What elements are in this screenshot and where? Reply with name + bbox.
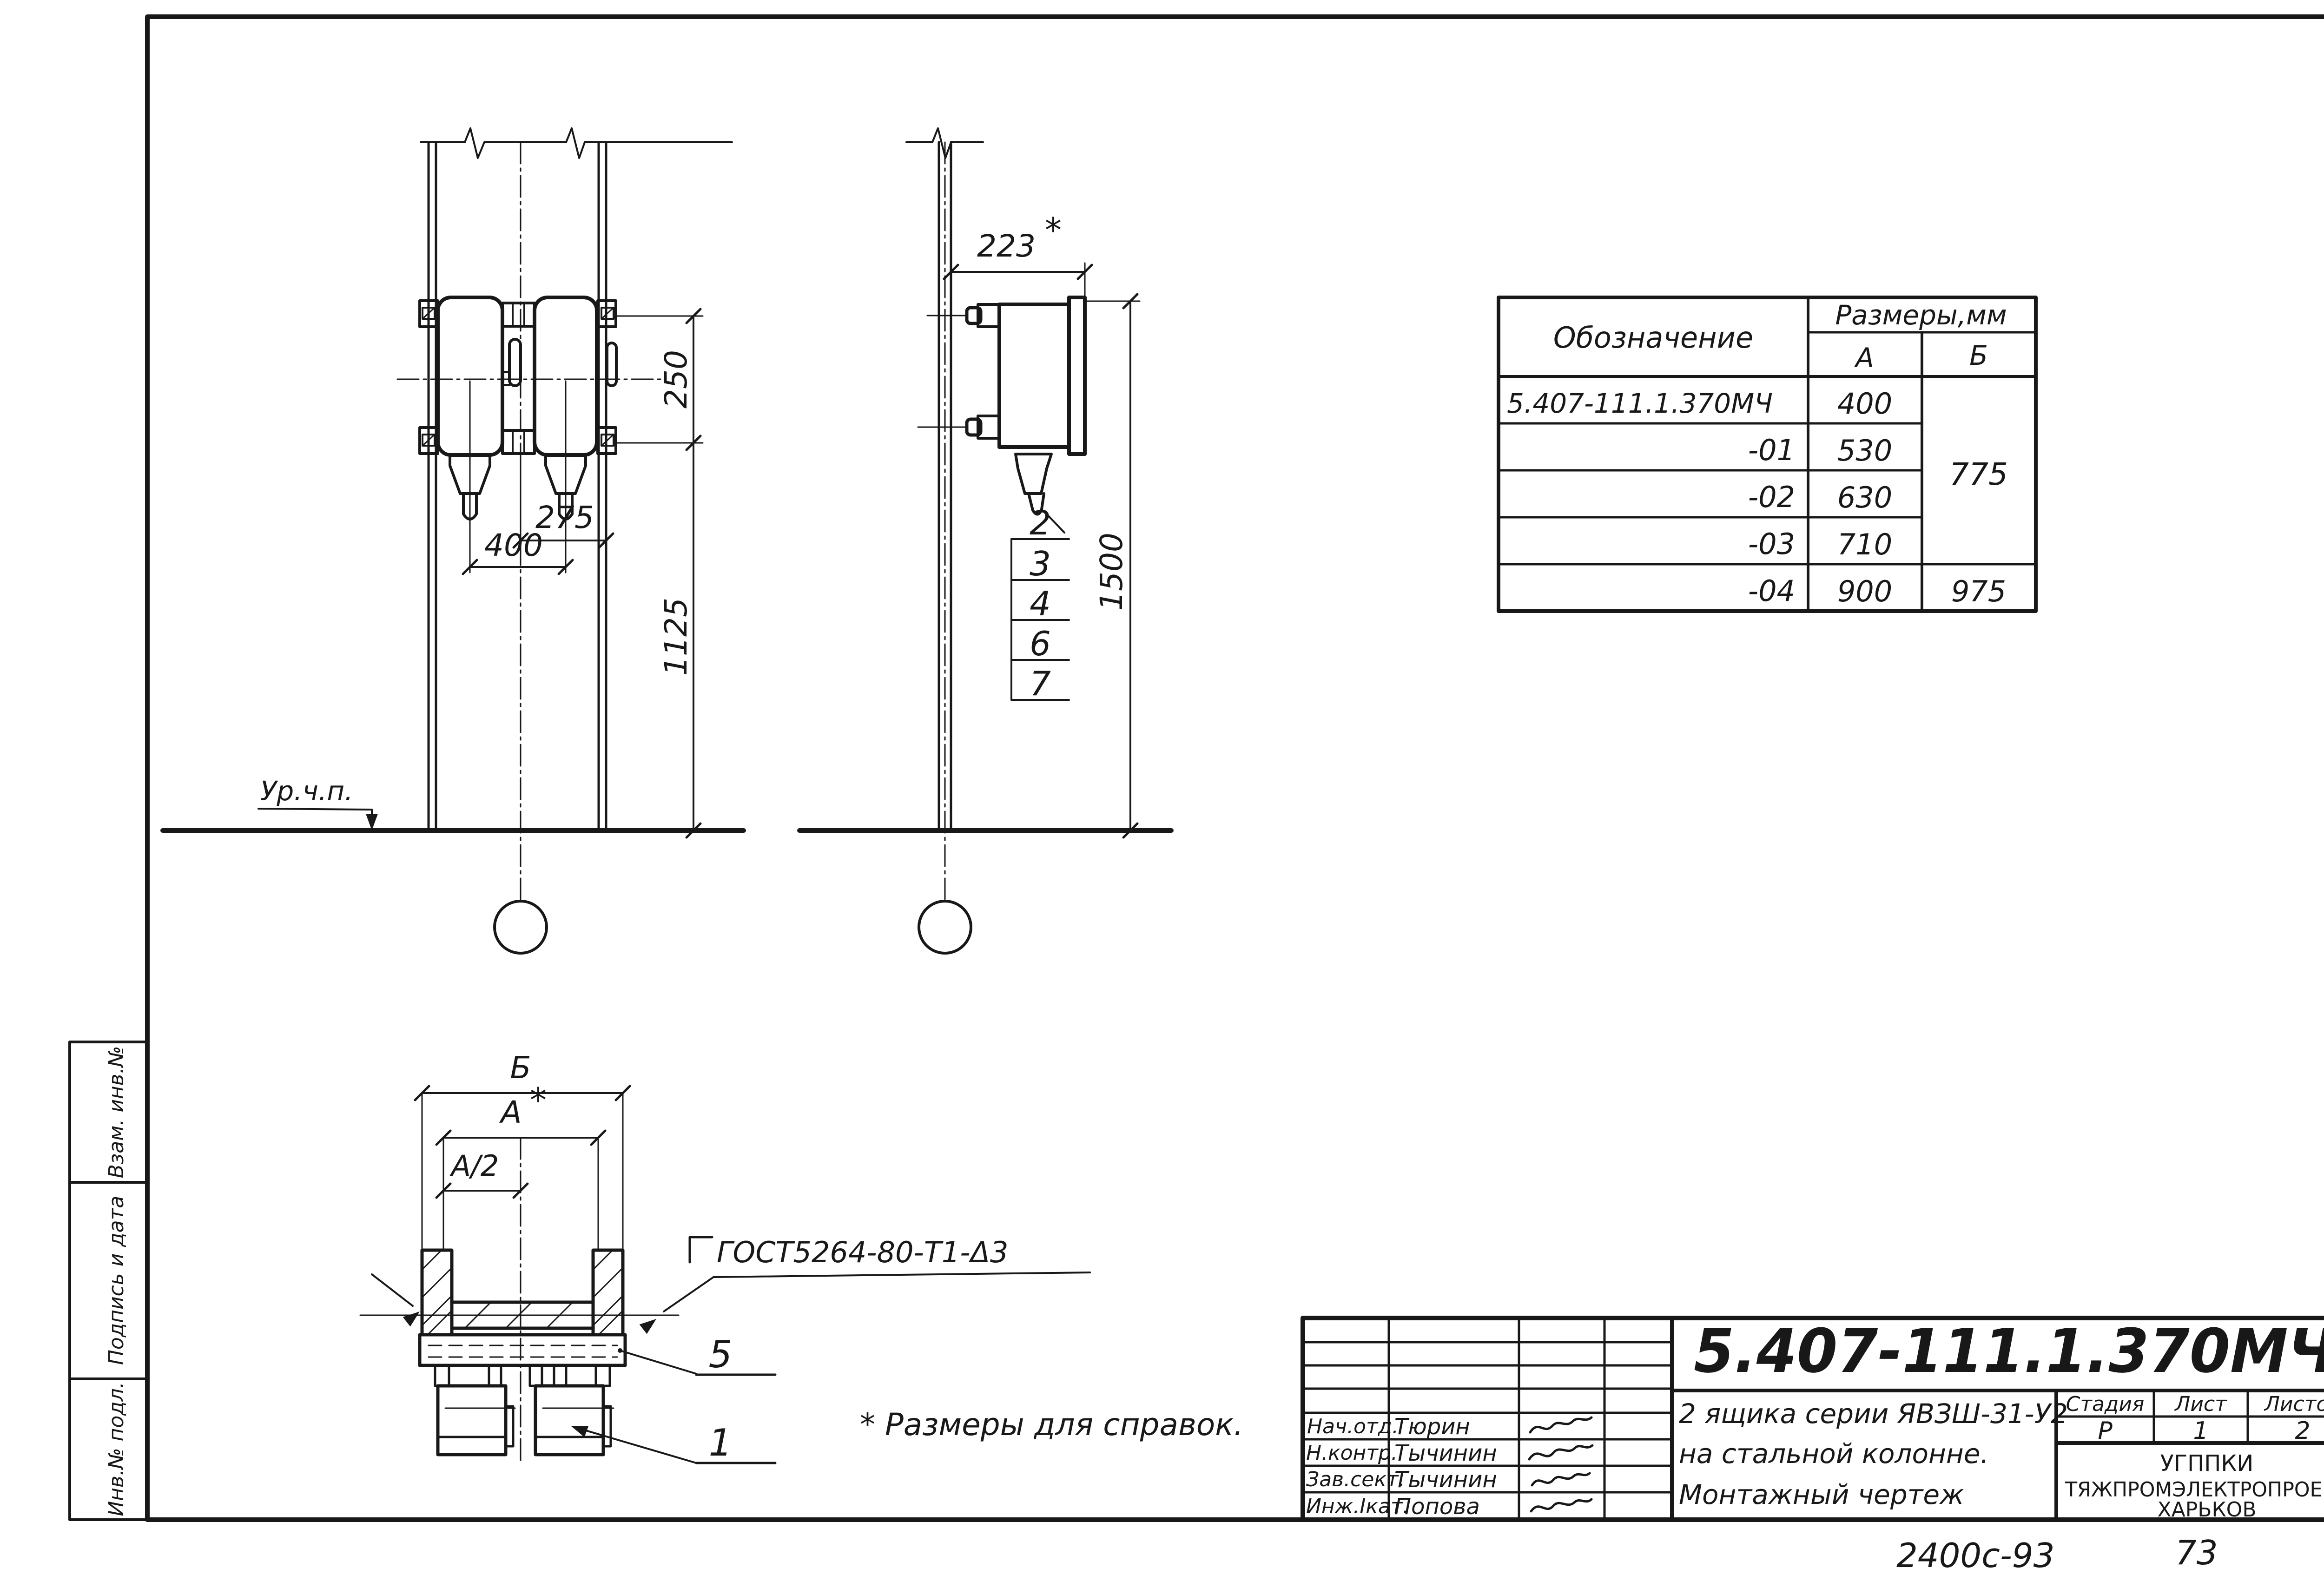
table-header-sizes: Размеры,мм [1835, 299, 2007, 331]
row3-a: 630 [1837, 481, 1892, 514]
dim-a-star: * [530, 1081, 547, 1120]
axis-bubble-front [495, 901, 547, 953]
name-3: Тычинин [1394, 1467, 1497, 1493]
dim-a-half-text: А/2 [449, 1149, 499, 1183]
name-1: Тюрин [1394, 1414, 1470, 1440]
ground-label-text: Ур.ч.п. [260, 775, 353, 807]
dim-1125: 1125 [658, 443, 700, 837]
section-view: Б А * А/2 [360, 1050, 1090, 1464]
callout-5: 5 [709, 1333, 733, 1376]
signature-rows: Нач.отд. Тюрин Н.контр. Тычинин Зав.сект… [1303, 1414, 1672, 1520]
dim-400-text: 400 [484, 527, 543, 563]
row4-a: 710 [1837, 527, 1892, 561]
row2-designation: -01 [1748, 433, 1795, 467]
table-header-designation: Обозначение [1553, 321, 1753, 355]
dim-1500: 1500 [1085, 294, 1140, 837]
callout-4: 4 [1030, 584, 1051, 623]
dim-1500-text: 1500 [1094, 533, 1129, 611]
row1-a: 400 [1837, 387, 1892, 421]
table-row: -03 710 [1748, 527, 1892, 561]
dim-223: 223 * [944, 211, 1092, 297]
box-side-body [999, 304, 1069, 447]
sheet-value: 1 [2193, 1417, 2208, 1445]
callout-stack: 2 3 4 6 7 [1011, 503, 1069, 703]
title-block: Нач.отд. Тюрин Н.контр. Тычинин Зав.сект… [1303, 1316, 2324, 1522]
side-clamps [918, 304, 999, 438]
dim-1125-text: 1125 [658, 598, 694, 676]
plate-tabs [435, 1365, 610, 1386]
table-row: 5.407-111.1.370МЧ 400 [1507, 387, 1892, 421]
org-line-3: ХАРЬКОВ [2157, 1498, 2256, 1522]
channel-profile [422, 1250, 623, 1335]
row2-a: 530 [1837, 434, 1892, 468]
row4-designation: -03 [1748, 527, 1795, 561]
catalog-code: 2400с-93 [1896, 1536, 2054, 1575]
mounting-plate [420, 1335, 625, 1365]
callout-3: 3 [1030, 544, 1051, 583]
margin-stamp: Взам. инв.№ Подпись и дата Инв.№ подл. [70, 1042, 147, 1520]
weld-note-text: ГОСТ5264-80-Т1-Δ3 [717, 1235, 1008, 1269]
break-line-top [421, 128, 732, 158]
stage-label: Стадия [2066, 1392, 2145, 1416]
dim-a-text: А [499, 1094, 522, 1130]
stage-grid: Стадия Лист Листов Р 1 2 [2056, 1390, 2324, 1445]
dim-250-text: 250 [658, 350, 694, 409]
front-view: 250 1125 275 400 Ур.ч.п. [163, 128, 744, 953]
dim-223-star: * [1045, 211, 1062, 250]
callout-7: 7 [1030, 664, 1051, 703]
weld-flag-icon [690, 1237, 712, 1262]
weld-arrow-left [372, 1274, 413, 1306]
weld-note: ГОСТ5264-80-Т1-Δ3 [372, 1235, 1090, 1334]
name-2: Тычинин [1394, 1440, 1497, 1466]
title-line-2: на стальной колонне. [1679, 1438, 1989, 1470]
dim-b-text: Б [510, 1050, 531, 1086]
table-header-a: А [1854, 342, 1874, 374]
role-3: Зав.сект. [1306, 1468, 1405, 1491]
row5-designation: -04 [1748, 574, 1795, 608]
dim-250: 250 [615, 309, 703, 450]
row3-designation: -02 [1748, 480, 1795, 514]
callout-1: 1 [709, 1421, 733, 1464]
drawing-title: 2 ящика серии ЯВЗШ-31-У2 на стальной кол… [1679, 1398, 2068, 1510]
side-view: 223 * 1500 2 3 4 6 7 [799, 128, 1171, 953]
leader-1: 1 [569, 1420, 775, 1464]
callout-6: 6 [1030, 624, 1051, 663]
dim-275-text: 275 [535, 500, 594, 535]
role-2: Н.контр. [1306, 1441, 1398, 1465]
dimensions-table: Обозначение Размеры,мм А Б 5.407-111.1.3… [1499, 297, 2036, 611]
row5-a: 900 [1837, 574, 1892, 608]
organization: УГППКИ ТЯЖПРОМЭЛЕКТРОПРОЕКТ ХАРЬКОВ [2065, 1450, 2324, 1522]
margin-cell-podpis: Подпись и дата [105, 1196, 128, 1365]
page-number: 73 [2175, 1533, 2218, 1572]
title-line-3: Монтажный чертеж [1679, 1479, 1964, 1510]
ground-level-label: Ур.ч.п. [258, 775, 378, 830]
leader-5: 5 [618, 1333, 775, 1376]
role-1: Нач.отд. [1307, 1415, 1399, 1438]
row1-designation: 5.407-111.1.370МЧ [1507, 388, 1773, 419]
sheets-value: 2 [2295, 1417, 2310, 1445]
document-number: 5.407-111.1.370МЧ [1694, 1316, 2324, 1386]
dim-223-text: 223 [977, 228, 1036, 264]
dim-a-half: А/2 [436, 1149, 528, 1198]
stage-value: Р [2098, 1417, 2113, 1445]
table-header-b: Б [1969, 340, 1988, 371]
sheet-frame [147, 17, 2324, 1520]
org-line-1: УГППКИ [2160, 1450, 2254, 1476]
row5-b: 975 [1951, 574, 2006, 608]
signature-scribbles [1529, 1417, 1592, 1511]
sheet-label: Лист [2174, 1392, 2227, 1416]
role-4: Инж.Iкат. [1306, 1495, 1409, 1518]
title-line-1: 2 ящика серии ЯВЗШ-31-У2 [1679, 1398, 2068, 1430]
reference-note: * Размеры для справок. [860, 1407, 1243, 1443]
margin-cell-vzam: Взам. инв.№ [105, 1046, 128, 1179]
table-row: -02 630 [1748, 480, 1892, 514]
merged-b-value: 775 [1949, 456, 2008, 492]
boxes-top-view [438, 1386, 614, 1455]
name-4: Попова [1394, 1494, 1480, 1520]
drawing-sheet: Взам. инв.№ Подпись и дата Инв.№ подл. [0, 0, 2324, 1575]
callout-2: 2 [1030, 503, 1051, 542]
table-row: -01 530 [1748, 433, 1892, 468]
margin-cell-inv: Инв.№ подл. [105, 1382, 128, 1516]
box-side-cover [1069, 297, 1085, 454]
clamp-brackets [420, 301, 616, 454]
axis-bubble-side [919, 901, 971, 953]
border-frame [147, 17, 2324, 1520]
table-row: -04 900 975 [1748, 574, 2006, 608]
sheets-label: Листов [2264, 1392, 2324, 1416]
